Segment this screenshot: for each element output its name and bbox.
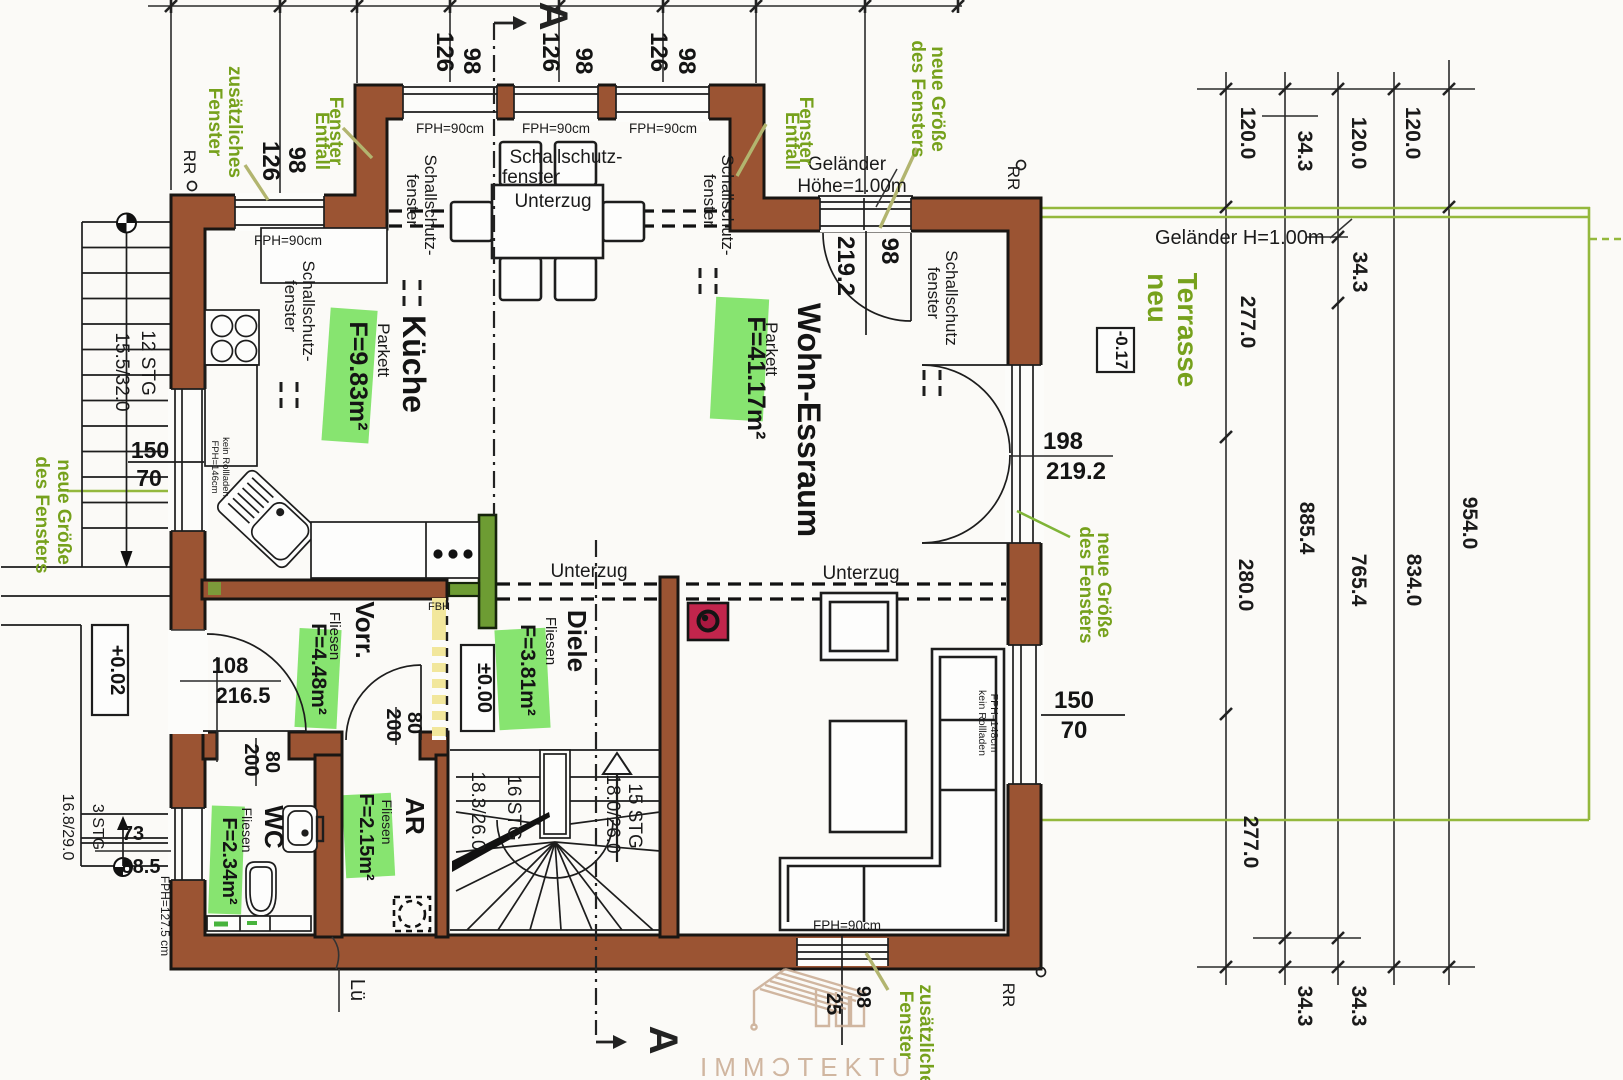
svg-text:fenster: fenster [281, 280, 300, 332]
svg-text:Fenster: Fenster [895, 991, 916, 1060]
svg-text:A: A [641, 1026, 685, 1055]
svg-text:Unterzug: Unterzug [550, 561, 627, 582]
svg-text:des Fensters: des Fensters [1075, 526, 1096, 643]
svg-text:Schallschutz: Schallschutz [942, 250, 961, 345]
svg-text:WC: WC [259, 805, 289, 849]
svg-text:126: 126 [431, 32, 458, 72]
svg-text:Entfall: Entfall [311, 112, 332, 170]
svg-text:Unterzug: Unterzug [822, 563, 899, 584]
svg-text:F=3.81m²: F=3.81m² [516, 624, 539, 716]
svg-text:Parkett: Parkett [374, 323, 393, 377]
svg-text:Geländer H=1.00m: Geländer H=1.00m [1155, 227, 1325, 249]
svg-text:F=4.48m²: F=4.48m² [307, 623, 330, 715]
svg-text:70: 70 [1061, 717, 1088, 744]
svg-text:Fliesen: Fliesen [542, 617, 559, 665]
svg-text:150: 150 [131, 437, 169, 463]
svg-text:zusätzliches: zusätzliches [224, 66, 245, 178]
svg-text:25: 25 [822, 993, 844, 1015]
svg-text:zusätzliche: zusätzliche [915, 984, 936, 1080]
svg-text:98: 98 [458, 48, 485, 75]
svg-text:neu: neu [1142, 273, 1173, 323]
svg-text:Lü: Lü [346, 979, 368, 1001]
svg-text:F=9.83m²: F=9.83m² [344, 321, 372, 430]
svg-text:834.0: 834.0 [1402, 554, 1425, 607]
svg-text:98: 98 [876, 238, 903, 265]
svg-text:Unterzug: Unterzug [514, 191, 591, 212]
svg-text:Fliesen: Fliesen [379, 799, 395, 844]
svg-text:150: 150 [1054, 687, 1094, 714]
svg-text:765.4: 765.4 [1347, 554, 1370, 607]
svg-text:219.2: 219.2 [1046, 458, 1106, 485]
svg-text:280.0: 280.0 [1234, 559, 1257, 612]
svg-text:IMMƆTEKTU: IMMƆTEKTU [700, 1052, 918, 1080]
svg-text:neue Größe: neue Größe [927, 46, 948, 152]
svg-text:FPH=90cm: FPH=90cm [813, 918, 881, 933]
svg-text:FPH=90cm: FPH=90cm [629, 121, 697, 136]
svg-text:fenster: fenster [924, 267, 943, 319]
svg-text:Diele: Diele [562, 610, 592, 672]
svg-text:Küche: Küche [396, 315, 432, 413]
svg-text:fenster: fenster [700, 174, 719, 226]
svg-text:Vorr.: Vorr. [350, 601, 380, 658]
svg-text:98: 98 [283, 147, 310, 174]
svg-text:885.4: 885.4 [1295, 502, 1318, 555]
svg-text:12 STG: 12 STG [137, 330, 158, 395]
svg-text:98: 98 [852, 986, 874, 1008]
svg-text:F=41.17m²: F=41.17m² [742, 317, 770, 440]
svg-text:kein Rollladen: kein Rollladen [976, 690, 988, 756]
svg-text:34.3: 34.3 [1293, 131, 1316, 172]
svg-text:des Fensters: des Fensters [31, 456, 52, 573]
svg-text:277.0: 277.0 [1236, 296, 1259, 349]
svg-text:98: 98 [570, 48, 597, 75]
svg-text:neue Größe: neue Größe [53, 459, 74, 565]
svg-text:FBH: FBH [428, 601, 450, 613]
svg-text:FPH=127.5 cm: FPH=127.5 cm [158, 876, 172, 956]
svg-text:34.3: 34.3 [1293, 986, 1316, 1027]
svg-text:Schallschutz-: Schallschutz- [510, 147, 623, 168]
svg-text:fenster: fenster [403, 174, 422, 226]
svg-text:Schallschutz-: Schallschutz- [299, 260, 318, 361]
svg-text:+0.02: +0.02 [106, 645, 128, 696]
svg-text:FPH=90cm: FPH=90cm [522, 121, 590, 136]
svg-text:FPH=90cm: FPH=90cm [416, 121, 484, 136]
svg-text:16.8/29.0: 16.8/29.0 [59, 794, 76, 861]
svg-text:108: 108 [212, 653, 249, 678]
svg-text:18.0/26.0: 18.0/26.0 [602, 774, 623, 853]
svg-text:15 STG: 15 STG [624, 783, 645, 848]
svg-text:RR: RR [999, 983, 1018, 1008]
svg-text:Geländer: Geländer [808, 154, 887, 175]
svg-text:80: 80 [403, 712, 425, 734]
svg-text:fenster: fenster [502, 167, 561, 188]
svg-text:80: 80 [261, 751, 283, 773]
svg-text:Höhe=1.00m: Höhe=1.00m [797, 176, 906, 197]
svg-text:200: 200 [240, 743, 262, 776]
svg-text:219.2: 219.2 [832, 236, 859, 296]
svg-text:Schallschutz-: Schallschutz- [421, 154, 440, 255]
svg-text:FPH=148cm: FPH=148cm [988, 694, 1000, 753]
svg-text:3 STG: 3 STG [89, 804, 106, 850]
svg-text:88.5: 88.5 [122, 856, 161, 878]
svg-text:Fenster: Fenster [204, 88, 225, 157]
svg-text:RR: RR [1004, 166, 1023, 191]
svg-text:216.5: 216.5 [215, 683, 270, 708]
svg-text:34.3: 34.3 [1347, 986, 1370, 1027]
svg-text:198: 198 [1043, 428, 1083, 455]
svg-text:F=2.34m²: F=2.34m² [218, 817, 240, 905]
svg-text:Entfall: Entfall [781, 112, 802, 170]
svg-text:200: 200 [382, 708, 404, 741]
svg-text:70: 70 [136, 465, 162, 491]
svg-text:120.0: 120.0 [1347, 117, 1370, 170]
svg-text:16 STG: 16 STG [503, 775, 524, 840]
svg-text:Wohn-Essraum: Wohn-Essraum [791, 303, 827, 537]
svg-text:Fliesen: Fliesen [239, 807, 255, 852]
svg-text:73: 73 [122, 823, 144, 845]
svg-text:RR: RR [180, 150, 199, 175]
svg-text:FPH=90cm: FPH=90cm [254, 233, 322, 248]
svg-text:126: 126 [537, 32, 564, 72]
svg-text:126: 126 [257, 141, 284, 181]
svg-text:FPH=146cm: FPH=146cm [209, 440, 220, 493]
svg-text:98: 98 [673, 48, 700, 75]
svg-text:±0.00: ±0.00 [473, 663, 495, 713]
svg-text:F=2.15m²: F=2.15m² [355, 793, 377, 881]
svg-text:15.5/32.0: 15.5/32.0 [111, 332, 132, 411]
svg-text:A: A [531, 2, 575, 31]
svg-text:954.0: 954.0 [1458, 497, 1481, 550]
svg-text:34.3: 34.3 [1348, 252, 1371, 293]
svg-text:277.0: 277.0 [1239, 816, 1262, 869]
svg-text:Terrasse: Terrasse [1172, 273, 1203, 388]
svg-text:18.3/26.0: 18.3/26.0 [467, 771, 488, 850]
svg-text:120.0: 120.0 [1401, 107, 1424, 160]
svg-text:-0.17: -0.17 [1112, 331, 1131, 370]
svg-text:des Fensters: des Fensters [907, 40, 928, 157]
svg-text:120.0: 120.0 [1236, 107, 1259, 160]
svg-text:Schallschutz-: Schallschutz- [718, 154, 737, 255]
svg-text:kein Rollladen: kein Rollladen [220, 437, 231, 497]
svg-text:AR: AR [400, 797, 430, 835]
svg-text:126: 126 [645, 32, 672, 72]
